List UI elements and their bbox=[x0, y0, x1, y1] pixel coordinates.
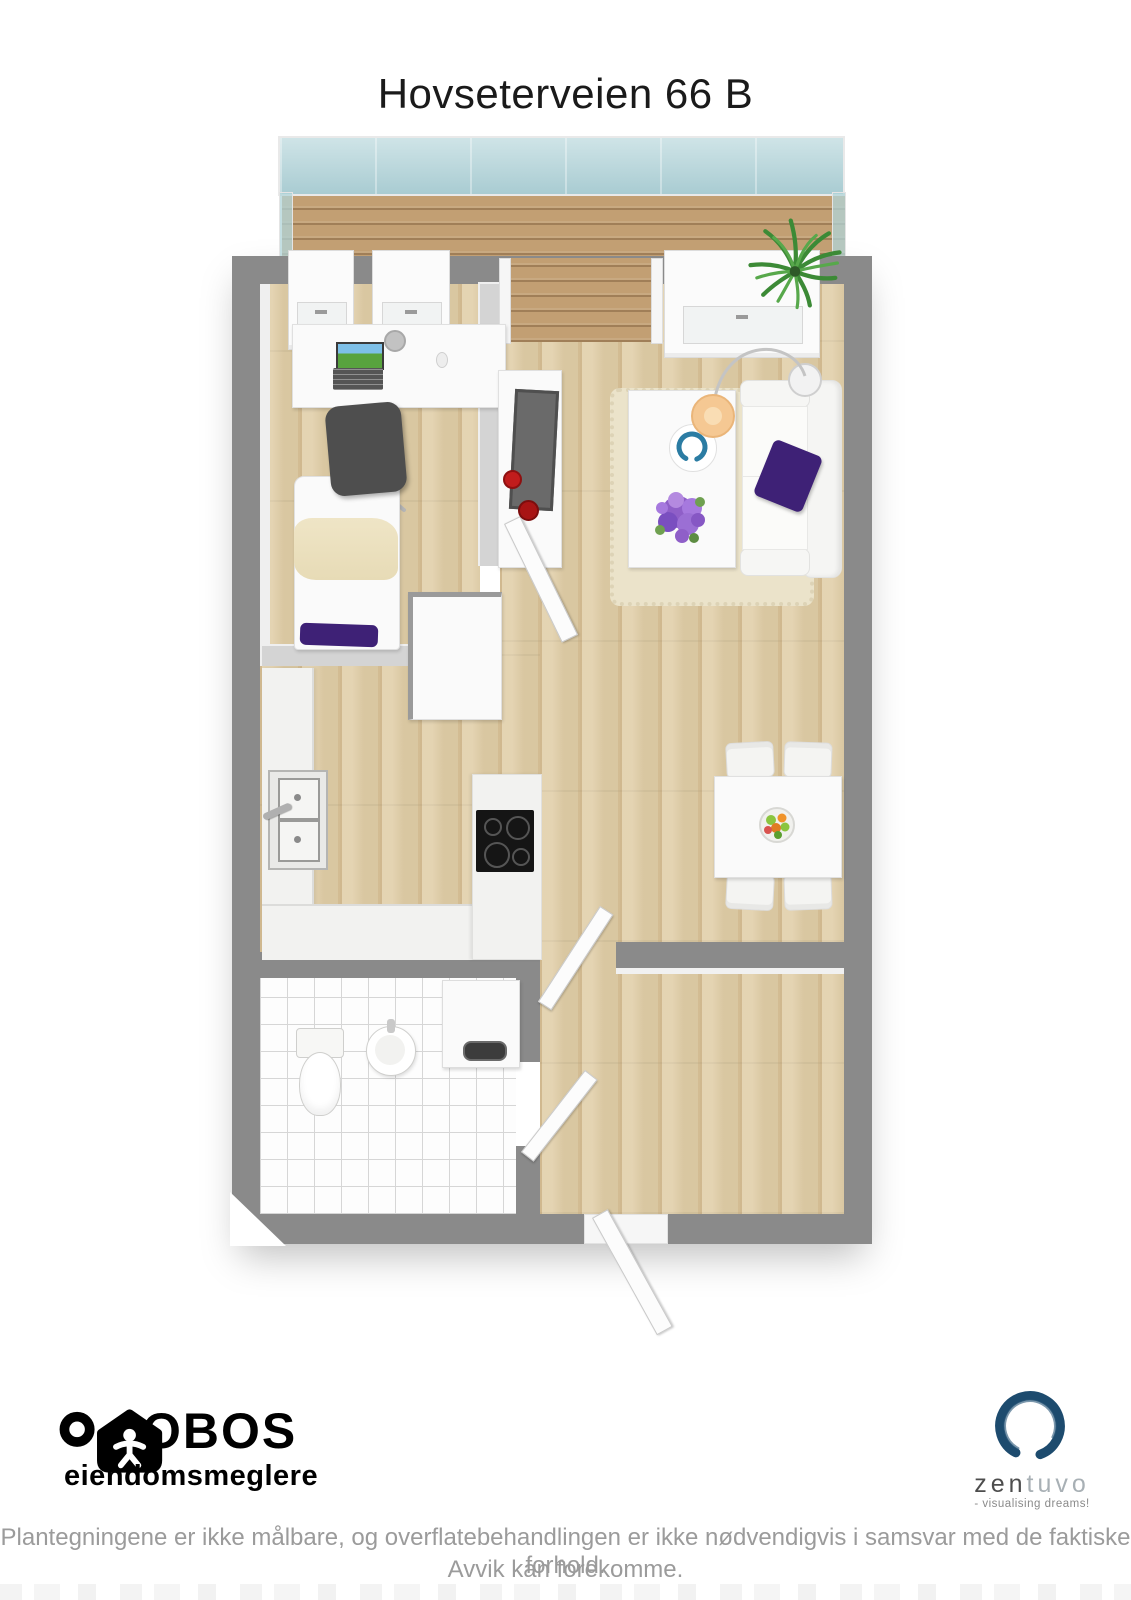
laptop-keyboard bbox=[333, 368, 383, 390]
wardrobe-icon bbox=[408, 592, 502, 720]
decor-bowl-icon bbox=[672, 427, 712, 467]
dining-chair-icon bbox=[783, 741, 832, 779]
sink-drain bbox=[294, 794, 301, 801]
flower-bouquet-icon bbox=[648, 482, 716, 550]
obos-subtitle: eiendomsmeglere bbox=[64, 1460, 318, 1493]
desk-lamp-icon bbox=[384, 330, 406, 352]
document-background: Hovseterveien 66 B bbox=[0, 0, 1131, 1600]
window-handle bbox=[405, 310, 417, 314]
bathroom-sink-icon bbox=[366, 1026, 416, 1076]
zentuvo-logo: zentuvo - visualising dreams! bbox=[942, 1380, 1122, 1510]
wall-living-hall bbox=[616, 942, 844, 968]
toilet-icon bbox=[296, 1028, 342, 1116]
obos-logo: OBOS eiendomsmeglere bbox=[56, 1400, 376, 1510]
cooktop-icon bbox=[476, 810, 534, 872]
sofa-armrest-bottom bbox=[740, 548, 810, 576]
burner bbox=[484, 842, 510, 868]
zentuvo-tagline: - visualising dreams! bbox=[942, 1498, 1122, 1510]
dining-chair-icon bbox=[725, 873, 775, 911]
washing-machine-icon bbox=[442, 980, 520, 1068]
mouse-icon bbox=[436, 352, 448, 368]
zentuvo-enso-icon bbox=[988, 1384, 1072, 1468]
dining-chair-icon bbox=[725, 741, 775, 779]
bed-blanket bbox=[294, 518, 398, 580]
washer-door bbox=[463, 1041, 507, 1061]
burner bbox=[484, 818, 502, 836]
window-handle bbox=[315, 310, 327, 314]
dining-chair-icon bbox=[783, 873, 832, 911]
floor-plan bbox=[0, 0, 1131, 1600]
sink-drain-2 bbox=[294, 836, 301, 843]
wall-bottom-left bbox=[232, 1214, 584, 1244]
zentuvo-brand-tuvo: tuvo bbox=[1027, 1470, 1090, 1498]
cropped-bottom-strip bbox=[0, 1584, 1131, 1600]
potted-plant-icon bbox=[742, 210, 848, 316]
burner bbox=[512, 848, 530, 866]
bed-pillow-purple bbox=[300, 623, 379, 648]
fruit-bowl-icon bbox=[758, 806, 796, 844]
burner bbox=[506, 816, 530, 840]
zentuvo-brand: zentuvo bbox=[942, 1470, 1122, 1499]
office-chair-icon bbox=[324, 401, 408, 497]
sink-inner bbox=[375, 1035, 405, 1065]
balcony-door-jamb-right bbox=[651, 258, 663, 344]
wall-bottom-right bbox=[666, 1214, 844, 1244]
toilet-bowl bbox=[299, 1052, 341, 1116]
vase-icon bbox=[503, 470, 522, 489]
wall-living-hall-face bbox=[616, 968, 844, 974]
balcony-door-threshold bbox=[499, 258, 661, 342]
disclaimer-line-2: Avvik kan forekomme. bbox=[0, 1556, 1131, 1584]
tv-icon bbox=[509, 389, 559, 511]
bedroom-wall-face bbox=[260, 282, 270, 652]
glass-railing-icon bbox=[278, 136, 845, 196]
zentuvo-brand-zen: zen bbox=[974, 1470, 1026, 1498]
vase-icon-2 bbox=[518, 500, 539, 521]
laptop-icon bbox=[336, 342, 384, 370]
faucet-icon bbox=[387, 1019, 395, 1033]
obos-brand-text: OBOS bbox=[142, 1402, 297, 1460]
wall-left bbox=[232, 256, 260, 1218]
wall-right bbox=[844, 256, 872, 1244]
kitchen-sink-icon bbox=[268, 770, 328, 870]
